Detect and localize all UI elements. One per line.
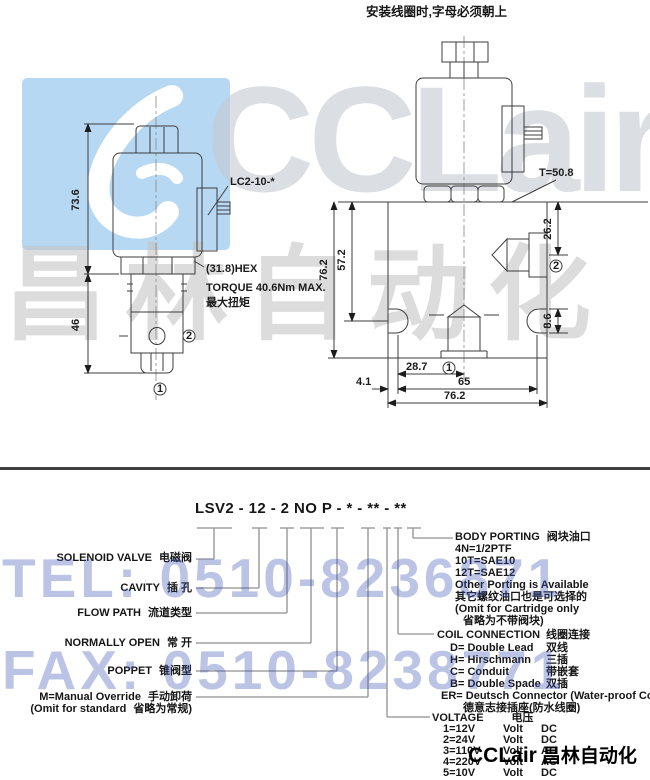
label-cavity-cn: 插 孔 <box>167 582 192 594</box>
voltage-option-5: 5=10VVoltDC <box>443 767 557 779</box>
label-manual-override: M=Manual Override手动卸荷 <box>39 691 192 703</box>
label-poppet-cn: 锥阀型 <box>159 665 192 677</box>
label-cavity-en: CAVITY <box>120 582 160 594</box>
coil-option-b: B= Double Spade <box>450 678 541 690</box>
dim-28-7: 28.7 <box>406 361 427 373</box>
body-porting-block: BODY PORTING阀块油口 4N=1/2PTF 10T=SAE10 12T… <box>455 531 591 627</box>
label-poppet-en: POPPET <box>107 665 152 677</box>
label-omit-standard-cn: 省略为常规) <box>133 703 192 715</box>
label-solenoid-valve-cn: 电磁阀 <box>159 552 192 564</box>
label-poppet: POPPET锥阀型 <box>107 665 192 677</box>
label-omit-standard: (Omit for standard省略为常规) <box>30 703 192 715</box>
label-manual-override-cn: 手动卸荷 <box>148 691 192 703</box>
watermark-brand-cn-text: 昌林自动化 <box>4 243 609 346</box>
body-porting-line: 4N=1/2PTF <box>455 543 591 555</box>
label-manual-override-en: M=Manual Override <box>39 691 141 703</box>
body-porting-line: (Omit for Cartridge only <box>455 603 591 615</box>
body-porting-line: Other Porting is Available <box>455 579 591 591</box>
body-porting-line: 省略为不带阀块) <box>455 615 591 627</box>
coil-option-h-cn: 三插 <box>546 654 568 666</box>
datasheet-page: CCLair 昌林自动化 <box>0 0 650 780</box>
coil-option-c: C= Conduit <box>450 666 509 678</box>
coil-option-er: ER= Deutsch Connector (Water-proof Coil) <box>441 690 650 702</box>
coil-option-d: D= Double Lead <box>450 642 533 654</box>
install-note: 安装线圈时,字母必须朝上 <box>366 5 507 19</box>
body-porting-line: 10T=SAE10 <box>455 555 591 567</box>
label-normally-open: NORMALLY OPEN常 开 <box>65 637 192 649</box>
label-flow-path: FLOW PATH流道类型 <box>77 607 192 619</box>
side-port1-marker: 1 <box>443 362 455 374</box>
label-solenoid-valve-en: SOLENOID VALVE <box>56 552 152 564</box>
watermark-brand-text: CCLair <box>206 64 650 214</box>
coil-option-h: H= Hirschmann <box>450 654 531 666</box>
footer-brand-cn: 昌林自动化 <box>542 746 637 767</box>
label-cavity: CAVITY插 孔 <box>120 582 192 594</box>
label-normally-open-cn: 常 开 <box>167 637 192 649</box>
label-omit-standard-en: (Omit for standard <box>30 703 126 715</box>
coil-connection-title-cn: 线圈连接 <box>546 629 590 641</box>
front-port1-marker: 1 <box>154 383 166 395</box>
body-porting-line: 其它螺纹油口也是可选择的 <box>455 591 591 603</box>
dim-4-1: 4.1 <box>356 376 371 388</box>
label-normally-open-en: NORMALLY OPEN <box>65 637 160 649</box>
label-flow-path-en: FLOW PATH <box>77 607 141 619</box>
body-porting-title: BODY PORTING阀块油口 <box>455 531 591 543</box>
svg-text:1: 1 <box>157 383 163 395</box>
coil-connection-title: COIL CONNECTION <box>437 629 540 641</box>
footer-brand: CCLair昌林自动化 <box>468 744 637 768</box>
label-flow-path-cn: 流道类型 <box>148 607 192 619</box>
logo-swoosh-icon <box>22 78 230 250</box>
section-divider <box>0 467 650 470</box>
svg-text:1: 1 <box>446 362 452 374</box>
footer-brand-en: CCLair <box>468 744 537 767</box>
coil-option-c-cn: 带嵌套 <box>546 666 579 678</box>
dim-76-2-horizontal: 76.2 <box>444 390 465 402</box>
cclair-logo-watermark <box>22 78 230 250</box>
coil-option-b-cn: 双插 <box>546 678 568 690</box>
body-porting-line: 12T=SAE12 <box>455 567 591 579</box>
coil-option-d-cn: 双线 <box>546 642 568 654</box>
label-solenoid-valve: SOLENOID VALVE电磁阀 <box>56 552 192 564</box>
ordering-code-tree <box>196 528 453 717</box>
model-code: LSV2 - 12 - 2 NO P - * - ** - ** <box>195 501 407 518</box>
dim-65: 65 <box>458 376 470 388</box>
